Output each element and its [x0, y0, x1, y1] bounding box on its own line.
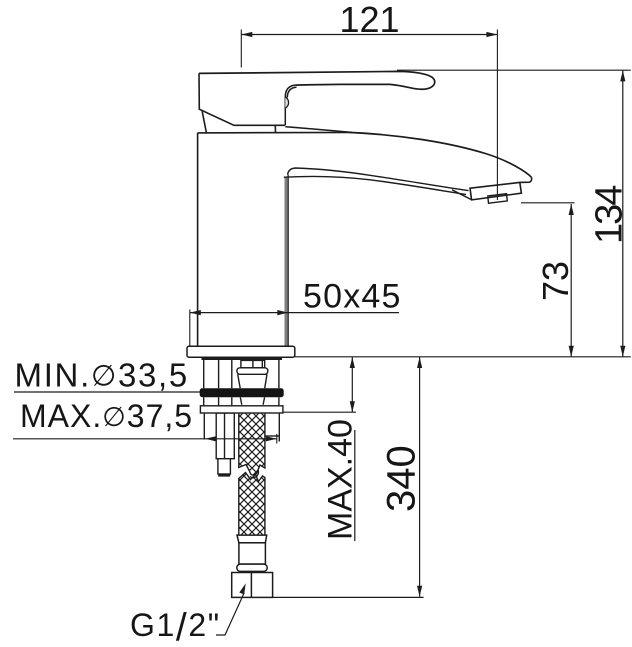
svg-text:50x45: 50x45 — [303, 278, 402, 316]
svg-text:134: 134 — [589, 185, 631, 244]
svg-text:G1/2": G1/2" — [130, 606, 221, 647]
svg-text:340: 340 — [380, 445, 424, 512]
svg-text:MAX.40: MAX.40 — [322, 419, 360, 540]
svg-text:MIN.∅33,5: MIN.∅33,5 — [15, 357, 189, 394]
svg-text:73: 73 — [535, 261, 576, 301]
svg-text:121: 121 — [340, 0, 400, 40]
svg-text:MAX.∅37,5: MAX.∅37,5 — [20, 398, 193, 434]
